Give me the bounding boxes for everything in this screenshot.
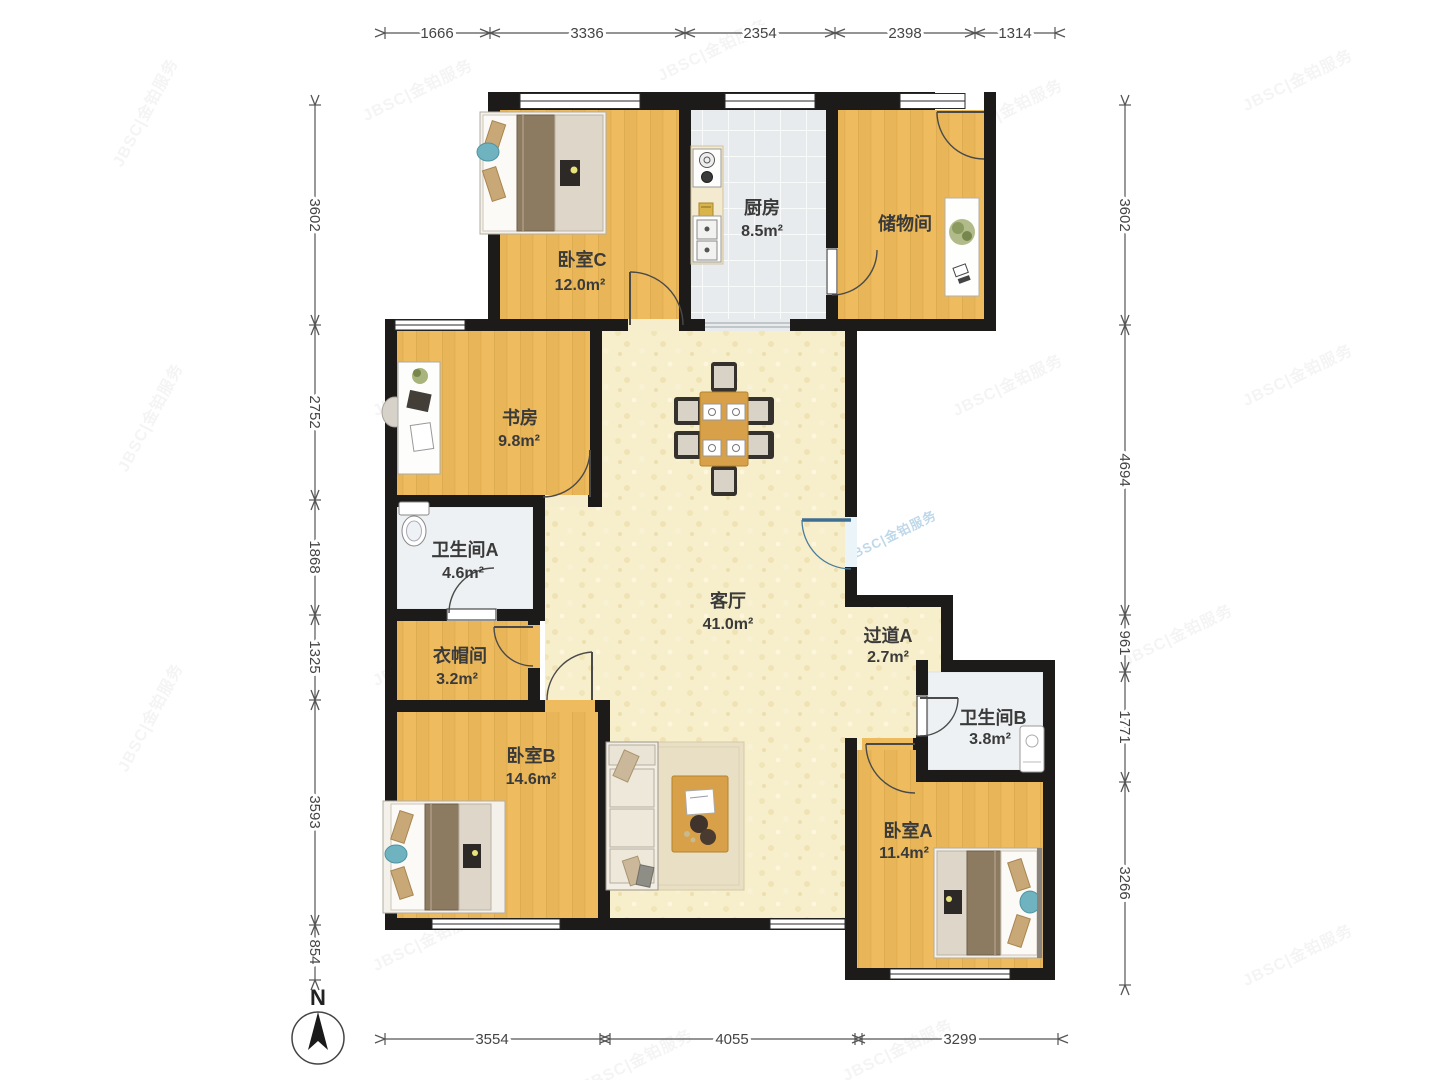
svg-text:961: 961 bbox=[1116, 630, 1133, 655]
tv-icon bbox=[944, 890, 962, 914]
svg-text:JBSC|金铂服务: JBSC|金铂服务 bbox=[1239, 920, 1355, 990]
window-bedroom-b bbox=[432, 919, 560, 929]
room-label-kitchen: 厨房 bbox=[744, 197, 780, 218]
room-label-bedroom-a: 卧室A bbox=[884, 820, 933, 841]
storage-cabinet-icon bbox=[945, 198, 979, 296]
window-storage bbox=[900, 94, 965, 109]
svg-text:JBSC|金铂服务: JBSC|金铂服务 bbox=[114, 360, 187, 475]
window-study bbox=[395, 320, 465, 330]
corridor-floor2 bbox=[602, 607, 610, 712]
paper-icon bbox=[410, 423, 433, 452]
dimensions-bottom: 3554 4055 3299 bbox=[385, 1031, 1058, 1048]
room-label-living: 客厅 bbox=[710, 590, 746, 611]
window-bedroom-c bbox=[520, 94, 640, 109]
svg-text:3336: 3336 bbox=[570, 25, 603, 42]
washer-icon bbox=[1020, 726, 1044, 772]
svg-text:3299: 3299 bbox=[943, 1031, 976, 1048]
room-label-bedroom-c: 卧室C bbox=[558, 249, 607, 270]
coffee-table-icon bbox=[672, 776, 728, 852]
toilet-icon bbox=[399, 502, 429, 546]
svg-text:3602: 3602 bbox=[306, 198, 323, 231]
svg-text:JBSC|金铂服务: JBSC|金铂服务 bbox=[1239, 340, 1355, 410]
svg-text:854: 854 bbox=[306, 939, 323, 964]
sofa-icon bbox=[606, 742, 658, 890]
room-area-bedroom-c: 12.0m² bbox=[555, 277, 606, 294]
room-area-living: 41.0m² bbox=[703, 616, 754, 633]
svg-text:3266: 3266 bbox=[1116, 866, 1133, 899]
svg-text:1666: 1666 bbox=[420, 25, 453, 42]
stove-icon bbox=[693, 149, 721, 187]
tv-icon bbox=[463, 844, 481, 868]
svg-text:1771: 1771 bbox=[1116, 710, 1133, 743]
room-area-kitchen: 8.5m² bbox=[741, 223, 783, 240]
svg-text:1868: 1868 bbox=[306, 540, 323, 573]
window-kitchen bbox=[725, 94, 815, 109]
floorplan-drawing: JBSC|金铂服务 JBSC|金铂服务 JBSC|金铂服务 JBSC|金铂服务 … bbox=[0, 0, 1440, 1080]
room-area-study: 9.8m² bbox=[498, 433, 540, 450]
room-label-hallway-a: 过道A bbox=[864, 625, 913, 646]
tv-icon bbox=[560, 160, 580, 186]
svg-text:2398: 2398 bbox=[888, 25, 921, 42]
room-label-bathroom-b: 卫生间B bbox=[960, 707, 1027, 728]
room-label-bathroom-a: 卫生间A bbox=[432, 539, 499, 560]
sofa-area bbox=[606, 742, 744, 890]
svg-text:4055: 4055 bbox=[715, 1031, 748, 1048]
room-area-cloakroom: 3.2m² bbox=[436, 671, 478, 688]
svg-text:2354: 2354 bbox=[743, 25, 776, 42]
window-bedroom-a bbox=[890, 969, 1010, 979]
bed-icon-bedroom-b bbox=[383, 801, 505, 913]
room-label-cloakroom: 衣帽间 bbox=[433, 645, 487, 666]
north-compass-icon: N bbox=[292, 985, 344, 1064]
room-area-bathroom-b: 3.8m² bbox=[969, 731, 1011, 748]
svg-text:JBSC|金铂服务: JBSC|金铂服务 bbox=[114, 660, 187, 775]
floorplan-page: JBSC|金铂服务 JBSC|金铂服务 JBSC|金铂服务 JBSC|金铂服务 … bbox=[0, 0, 1440, 1080]
svg-text:1314: 1314 bbox=[998, 25, 1031, 42]
svg-text:JBSC|金铂服务: JBSC|金铂服务 bbox=[359, 55, 475, 125]
bed-icon-bedroom-a bbox=[934, 848, 1042, 958]
svg-text:4694: 4694 bbox=[1116, 453, 1133, 486]
bed-icon-bedroom-c bbox=[477, 112, 606, 234]
room-label-bedroom-b: 卧室B bbox=[507, 745, 556, 766]
svg-text:JBSC|金铂服务: JBSC|金铂服务 bbox=[949, 350, 1065, 420]
svg-text:JBSC|金铂服务: JBSC|金铂服务 bbox=[1239, 45, 1355, 115]
dimensions-left: 3602 2752 1868 1325 3593 854 bbox=[306, 105, 323, 980]
svg-text:JBSC|金铂服务: JBSC|金铂服务 bbox=[579, 1025, 695, 1080]
svg-text:3593: 3593 bbox=[306, 795, 323, 828]
sink-icon bbox=[693, 216, 721, 262]
room-label-study: 书房 bbox=[502, 407, 538, 428]
room-label-storage: 储物间 bbox=[877, 213, 932, 234]
svg-text:JBSC|金铂服务: JBSC|金铂服务 bbox=[109, 55, 182, 170]
window-living bbox=[770, 919, 845, 929]
dimensions-right: 3602 4694 961 1771 3266 bbox=[1116, 105, 1133, 985]
svg-text:2752: 2752 bbox=[306, 395, 323, 428]
svg-text:3554: 3554 bbox=[475, 1031, 508, 1048]
north-label: N bbox=[310, 985, 326, 1010]
corridor-floor bbox=[545, 507, 602, 712]
room-area-bedroom-a: 11.4m² bbox=[879, 845, 929, 862]
svg-text:3602: 3602 bbox=[1116, 198, 1133, 231]
room-area-hallway-a: 2.7m² bbox=[867, 649, 909, 666]
kitchen-counter-icon bbox=[691, 146, 723, 264]
svg-text:JBSC|金铂服务: JBSC|金铂服务 bbox=[839, 1015, 955, 1080]
svg-text:1325: 1325 bbox=[306, 640, 323, 673]
plant-icon bbox=[949, 219, 975, 245]
svg-text:JBSC|金铂服务: JBSC|金铂服务 bbox=[1119, 600, 1235, 670]
room-area-bedroom-b: 14.6m² bbox=[506, 771, 557, 788]
room-area-bathroom-a: 4.6m² bbox=[442, 565, 484, 582]
svg-text:JBSC|金铂服务: JBSC|金铂服务 bbox=[843, 507, 939, 564]
